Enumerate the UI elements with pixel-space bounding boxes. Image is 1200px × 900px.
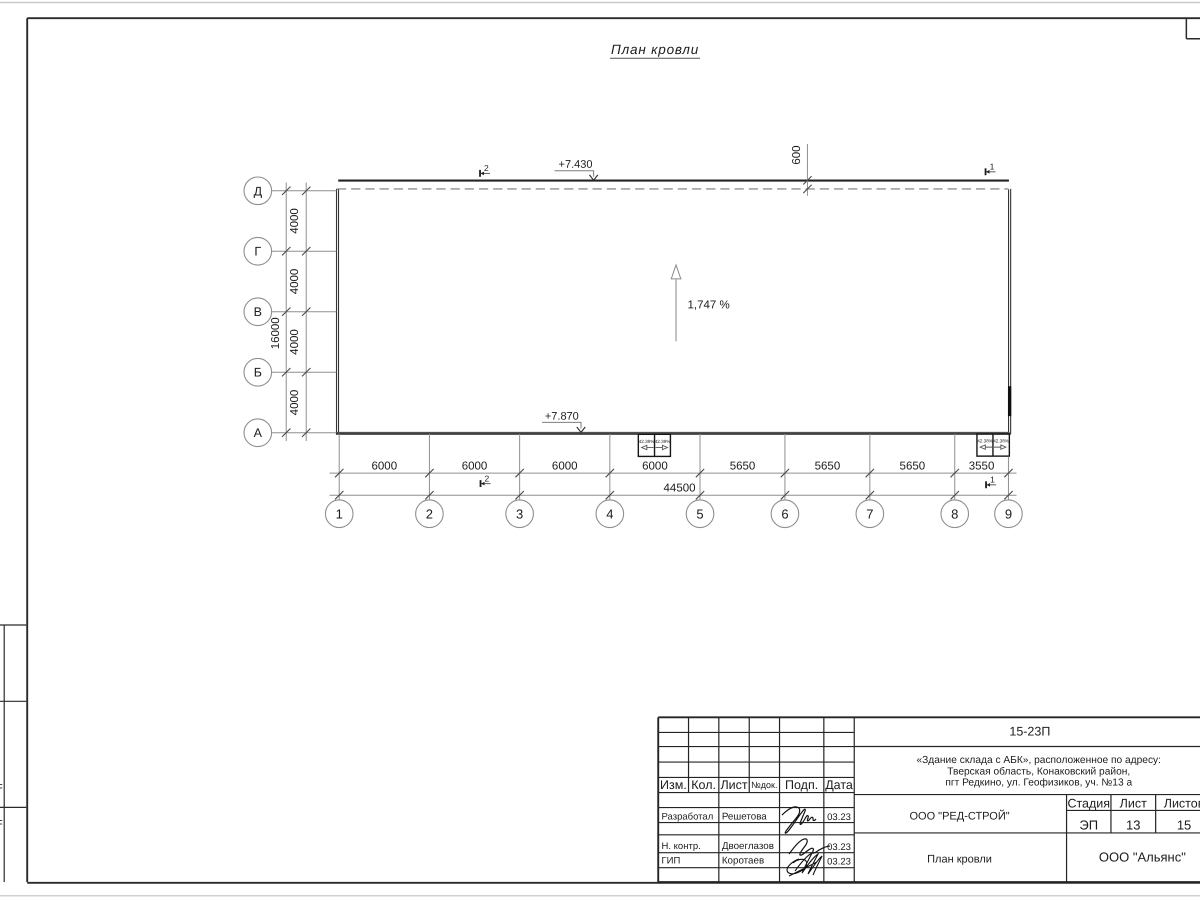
svg-text:Б: Б [254,366,262,380]
svg-text:15-23П: 15-23П [1009,725,1050,739]
svg-text:2: 2 [485,473,490,483]
svg-text:Дата: Дата [825,778,853,792]
svg-text:42.38%: 42.38% [993,439,1009,444]
svg-text:44500: 44500 [664,483,696,495]
svg-text:16000: 16000 [270,317,282,349]
svg-text:Лист: Лист [1120,796,1147,810]
svg-text:Стадия: Стадия [1067,796,1110,810]
svg-text:4000: 4000 [289,329,301,355]
svg-text:9: 9 [1005,506,1012,521]
svg-text:Н. контр.: Н. контр. [662,841,701,852]
svg-text:пгт Редкино, ул. Геофизиков, у: пгт Редкино, ул. Геофизиков, уч. №13 а [945,777,1132,788]
svg-text:7: 7 [866,506,873,521]
svg-text:№док.: №док. [751,780,777,790]
svg-text:6000: 6000 [552,461,578,473]
svg-text:15: 15 [1177,818,1191,833]
svg-text:2: 2 [484,163,489,173]
svg-text:6: 6 [781,506,788,521]
svg-text:+7.870: +7.870 [545,411,579,423]
svg-text:План кровли: План кровли [611,42,699,57]
svg-text:600: 600 [791,145,803,164]
svg-text:Кол.: Кол. [691,778,716,792]
svg-text:+7.430: +7.430 [559,159,593,171]
svg-text:4: 4 [606,506,613,521]
svg-text:6000: 6000 [372,461,398,473]
svg-text:8: 8 [951,506,958,521]
svg-text:1: 1 [336,506,343,521]
svg-text:А: А [254,426,263,440]
svg-text:Решетова: Решетова [722,811,767,822]
svg-text:ООО "РЕД-СТРОЙ": ООО "РЕД-СТРОЙ" [909,810,1009,823]
svg-text:1: 1 [990,475,995,485]
svg-text:03.23: 03.23 [827,857,851,868]
svg-text:5650: 5650 [900,461,926,473]
svg-text:3: 3 [516,506,523,521]
svg-text:5650: 5650 [815,461,841,473]
svg-text:Д: Д [254,184,263,198]
svg-text:Тверская область, Конаковский: Тверская область, Конаковский район, [947,766,1130,777]
svg-text:ООО "Альянс": ООО "Альянс" [1099,850,1186,865]
svg-text:План кровли: План кровли [927,854,992,866]
svg-text:03.23: 03.23 [827,842,851,853]
svg-text:Коротаев: Коротаев [722,856,764,867]
svg-text:13: 13 [1126,818,1140,833]
svg-text:«Здание склада с АБК», располо: «Здание склада с АБК», расположенное по … [916,755,1161,766]
svg-text:Лист: Лист [720,778,747,792]
svg-text:ГИП: ГИП [662,856,681,867]
svg-text:Разработал: Разработал [662,811,714,822]
svg-text:6000: 6000 [462,461,488,473]
svg-text:В: В [254,305,262,319]
svg-text:42.38%: 42.38% [639,439,655,444]
svg-text:Подп.: Подп. [785,778,818,792]
svg-text:ЭП: ЭП [1079,818,1098,833]
svg-text:1,747 %: 1,747 % [688,299,730,311]
svg-text:42.38%: 42.38% [977,439,993,444]
svg-text:4000: 4000 [289,269,301,295]
svg-text:2: 2 [426,506,433,521]
svg-text:3550: 3550 [969,461,995,473]
svg-text:Г: Г [254,245,261,259]
svg-text:42.38%: 42.38% [655,439,671,444]
svg-text:Двоеглазов: Двоеглазов [722,841,774,852]
svg-text:Изм.: Изм. [660,778,687,792]
svg-text:5: 5 [696,506,703,521]
svg-text:Листов: Листов [1164,796,1200,810]
svg-text:4000: 4000 [289,208,301,234]
svg-text:03.23: 03.23 [827,812,851,823]
svg-text:5650: 5650 [730,461,756,473]
svg-text:4000: 4000 [289,390,301,416]
svg-text:1: 1 [990,162,995,172]
svg-text:6000: 6000 [642,461,668,473]
